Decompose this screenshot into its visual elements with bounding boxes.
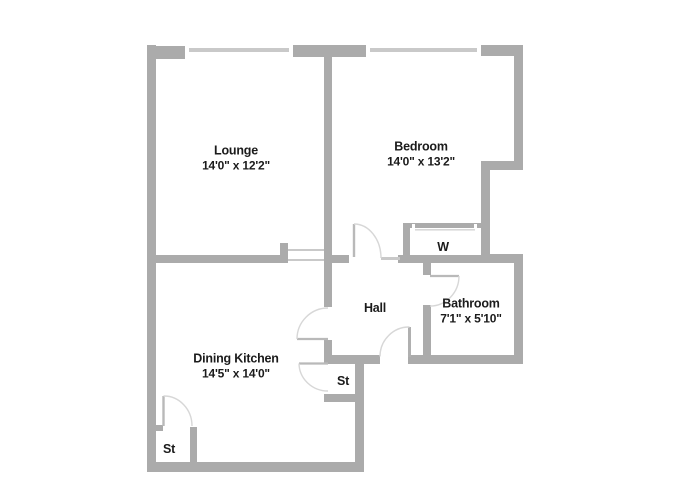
threshold-bedroom-door xyxy=(381,257,400,260)
wall-lounge-kitchen xyxy=(147,255,288,263)
walls xyxy=(147,45,523,472)
door-bedroom-arc xyxy=(354,224,381,258)
wall-right-mid xyxy=(481,161,490,261)
wardrobe-front-inner-line xyxy=(415,229,475,231)
room-label-bedroom: Bedroom 14'0" x 13'2" xyxy=(387,139,455,170)
wall-bathroom-top xyxy=(398,255,523,263)
door-kitchen-hall xyxy=(297,308,328,339)
opening-lounge-line-bottom xyxy=(288,259,324,261)
wall-wardrobe-left xyxy=(403,223,410,263)
room-name-dining-kitchen: Dining Kitchen xyxy=(193,351,278,367)
door-kitchen-hall-arc xyxy=(297,308,328,339)
door-store-kitchen xyxy=(164,396,193,426)
door-entrance-arc xyxy=(380,327,410,357)
wardrobe-tick-right xyxy=(474,224,477,228)
opening-lounge-line-top xyxy=(288,249,324,251)
room-label-lounge: Lounge 14'0" x 12'2" xyxy=(202,143,270,174)
wall-bathroom-left-upper xyxy=(423,263,431,275)
room-name-store-kitchen: St xyxy=(163,441,175,457)
doors xyxy=(164,224,460,426)
window-lounge xyxy=(185,48,293,52)
door-store-hall-arc xyxy=(299,364,328,392)
wall-mid-lower xyxy=(355,355,364,472)
floorplan: Lounge 14'0" x 12'2" Bedroom 14'0" x 13'… xyxy=(0,0,700,500)
door-store-hall xyxy=(299,364,328,392)
room-dims-bedroom: 14'0" x 13'2" xyxy=(387,155,455,170)
wall-store-kitchen-divider xyxy=(190,427,197,462)
room-dims-lounge: 14'0" x 12'2" xyxy=(202,159,270,174)
room-name-bedroom: Bedroom xyxy=(387,139,455,155)
room-label-wardrobe: W xyxy=(437,239,449,255)
wall-store-kitchen-stub xyxy=(156,425,163,431)
wall-bathroom-bottom xyxy=(408,355,523,364)
floorplan-drawing xyxy=(0,0,700,500)
room-name-hall: Hall xyxy=(364,300,386,316)
wall-divider-upper xyxy=(324,45,332,307)
wall-hall-bottom xyxy=(324,355,380,364)
room-dims-bathroom: 7'1" x 5'10" xyxy=(440,312,501,327)
room-name-bathroom: Bathroom xyxy=(440,296,501,312)
wall-right-lower xyxy=(514,254,523,364)
wall-opening-stub xyxy=(280,243,288,263)
room-name-wardrobe: W xyxy=(437,239,449,255)
room-name-store-hall: St xyxy=(337,373,349,389)
door-bedroom xyxy=(354,224,381,258)
wall-bedroom-hall-left xyxy=(324,255,349,263)
wall-top-left-block xyxy=(147,46,185,59)
door-entrance xyxy=(380,327,410,357)
room-label-bathroom: Bathroom 7'1" x 5'10" xyxy=(440,296,501,327)
window-bedroom xyxy=(366,48,481,52)
room-label-store-kitchen: St xyxy=(163,441,175,457)
room-label-dining-kitchen: Dining Kitchen 14'5" x 14'0" xyxy=(193,351,278,382)
room-label-hall: Hall xyxy=(364,300,386,316)
wardrobe-tick-left xyxy=(412,224,415,228)
wall-bottom xyxy=(147,462,364,472)
room-dims-dining-kitchen: 14'5" x 14'0" xyxy=(193,367,278,382)
wall-right-upper xyxy=(514,45,523,170)
room-name-lounge: Lounge xyxy=(202,143,270,159)
wall-store-hall-bottom xyxy=(324,394,364,402)
room-label-store-hall: St xyxy=(337,373,349,389)
door-store-kitchen-arc xyxy=(164,396,193,426)
